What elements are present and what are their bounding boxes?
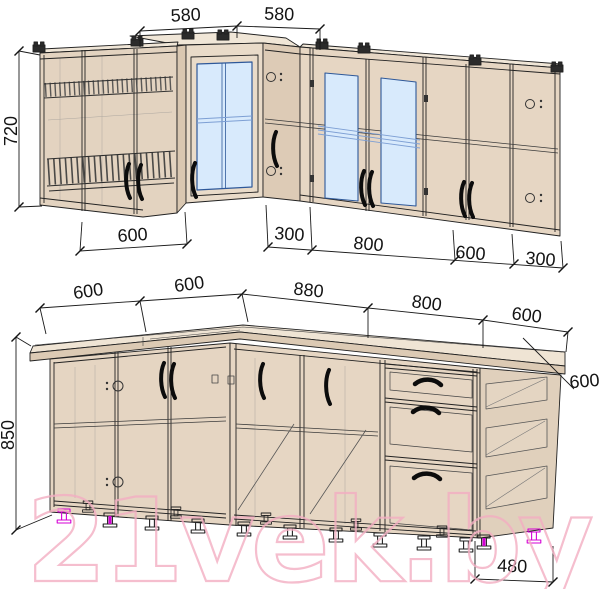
left-wing-cabinet xyxy=(40,46,177,217)
corner-glass-pane xyxy=(197,62,252,190)
dim-label-600-depth: 600 xyxy=(569,370,600,393)
dim-label-600-l5: 600 xyxy=(511,303,543,327)
dim-label-850: 850 xyxy=(0,420,18,450)
dim-label-600-l2: 600 xyxy=(173,272,206,296)
dim-label-600-l1: 600 xyxy=(72,279,105,303)
glass-pane-right xyxy=(381,78,416,206)
drawing-canvas: 580 580 720 600 300 800 600 300 xyxy=(0,0,600,589)
dim-label-580-left: 580 xyxy=(170,4,201,26)
dim-label-580-right: 580 xyxy=(264,3,295,24)
dim-label-300-u5: 300 xyxy=(525,248,557,271)
dim-label-800-l4: 800 xyxy=(411,291,443,315)
kitchen-technical-drawing: 580 580 720 600 300 800 600 300 xyxy=(0,0,600,589)
dim-label-300-u2: 300 xyxy=(274,223,305,245)
dim-label-800-u3: 800 xyxy=(353,233,385,256)
watermark-text: 21vek.by xyxy=(26,474,592,589)
dim-label-720: 720 xyxy=(1,116,21,146)
dim-label-600-u4: 600 xyxy=(455,242,487,265)
dim-label-880: 880 xyxy=(293,279,325,302)
dim-label-600-u1: 600 xyxy=(117,224,148,246)
